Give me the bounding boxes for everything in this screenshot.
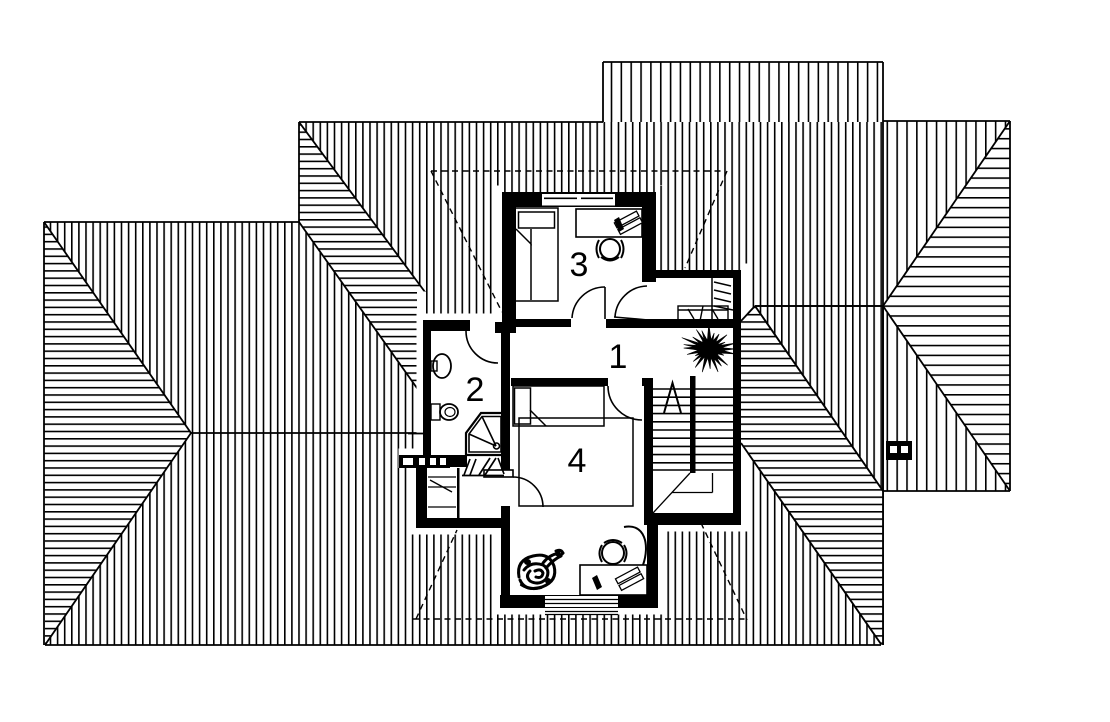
svg-text:4: 4 [568,442,587,480]
svg-text:3: 3 [570,246,589,284]
svg-text:1: 1 [609,338,628,376]
svg-text:2: 2 [466,371,485,409]
